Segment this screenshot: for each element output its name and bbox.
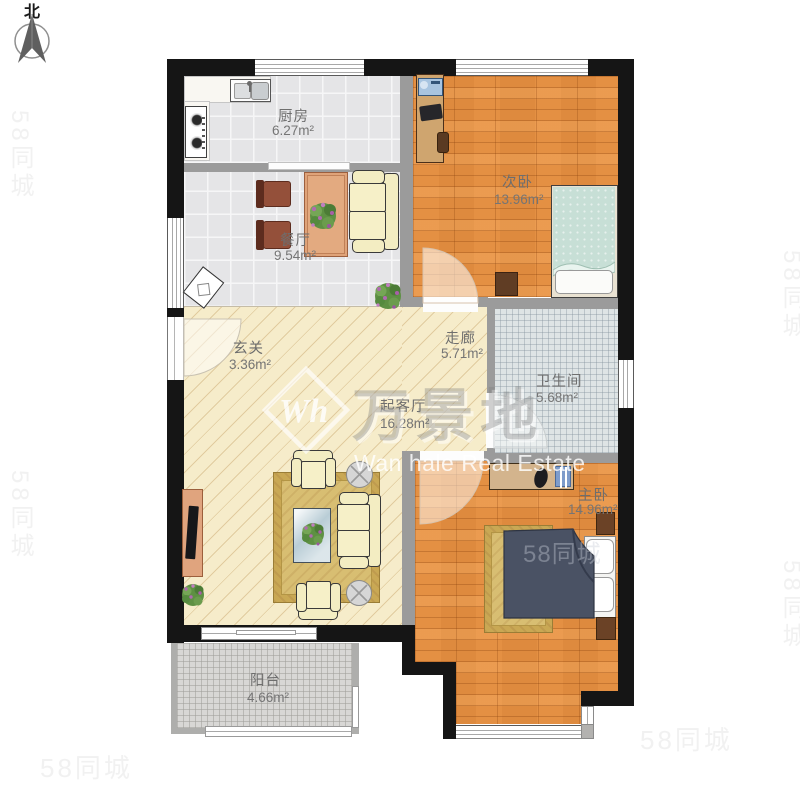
- svg-text:Wh: Wh: [279, 393, 328, 430]
